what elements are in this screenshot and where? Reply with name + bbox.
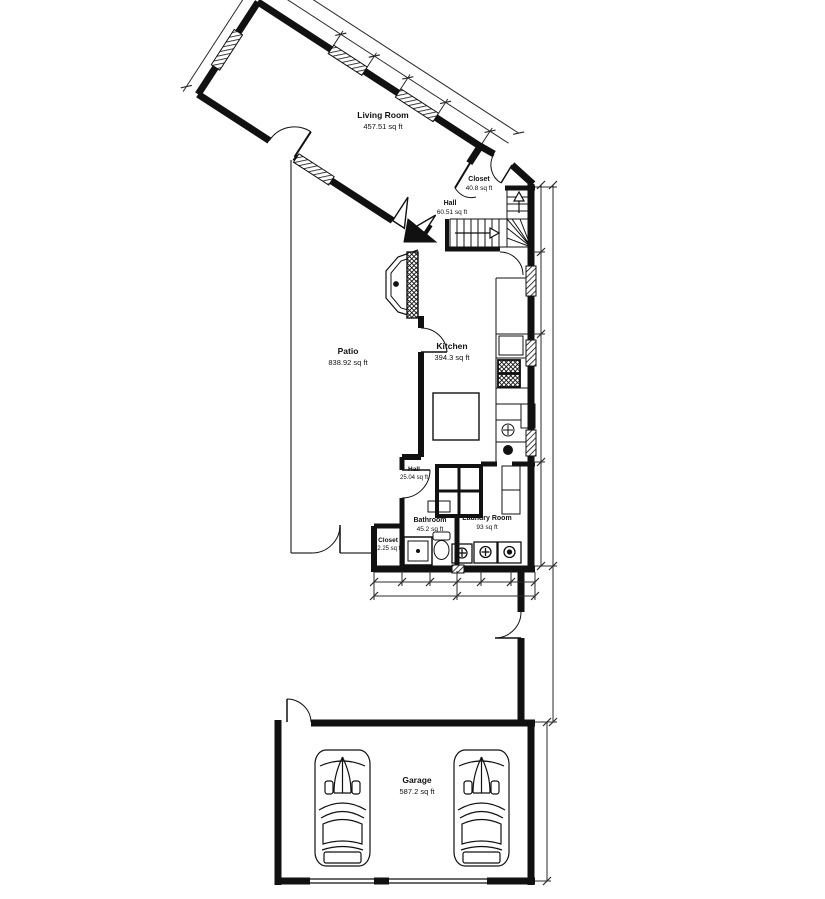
room-label-patio: Patio 838.92 sq ft xyxy=(328,346,368,367)
svg-text:Closet: Closet xyxy=(468,176,490,183)
rear-corridor xyxy=(495,572,521,722)
closet-shelving-grid xyxy=(437,466,481,516)
floor-plan-page: Living Room 457.51 sq ft Closet 40.8 sq … xyxy=(0,0,825,899)
door-garage-entry xyxy=(287,699,311,722)
svg-text:25.04 sq ft: 25.04 sq ft xyxy=(400,475,428,481)
room-label-closet-upper: Closet 40.8 sq ft xyxy=(466,176,493,192)
window xyxy=(211,29,242,70)
entry-door xyxy=(491,154,512,183)
firebox-grate xyxy=(407,252,418,318)
laundry-counter xyxy=(502,466,520,514)
svg-text:60.51 sq ft: 60.51 sq ft xyxy=(437,209,468,216)
room-label-laundry-room: Laundry Room 93 sq ft xyxy=(462,515,511,531)
door-patio-rear xyxy=(312,525,340,553)
window xyxy=(526,430,536,456)
car-right xyxy=(454,750,509,866)
svg-text:Garage: Garage xyxy=(402,775,432,785)
window xyxy=(452,565,464,573)
shower xyxy=(404,537,432,565)
stair-arrow-up xyxy=(514,192,524,213)
right-exterior-wall xyxy=(526,184,536,566)
svg-text:40.8 sq ft: 40.8 sq ft xyxy=(466,185,493,192)
wall xyxy=(198,94,269,140)
svg-text:394.3 sq ft: 394.3 sq ft xyxy=(434,353,470,362)
refrigerator xyxy=(499,336,523,355)
room-label-hall-upper: Hall 60.51 sq ft xyxy=(437,200,468,216)
kitchen-sink xyxy=(502,424,514,455)
room-label-living-room: Living Room 457.51 sq ft xyxy=(357,110,409,131)
dryer xyxy=(498,542,521,563)
svg-text:Living Room: Living Room xyxy=(357,110,409,120)
car-left xyxy=(315,750,370,866)
svg-text:Closet: Closet xyxy=(378,537,399,544)
svg-text:Kitchen: Kitchen xyxy=(436,341,467,351)
stove-burners xyxy=(498,374,520,387)
garage-door xyxy=(310,879,487,883)
svg-text:Laundry Room: Laundry Room xyxy=(462,515,511,522)
kitchen-structure xyxy=(402,278,535,462)
door-under-stairs xyxy=(500,252,523,275)
svg-text:Bathroom: Bathroom xyxy=(413,517,446,524)
toilet xyxy=(433,532,450,560)
svg-text:45.2 sq ft: 45.2 sq ft xyxy=(417,526,444,533)
patio-structure xyxy=(291,160,374,553)
stair-arrow-right xyxy=(455,228,499,238)
wall xyxy=(480,146,494,154)
svg-text:Hall: Hall xyxy=(444,200,457,207)
svg-text:93 sq ft: 93 sq ft xyxy=(476,524,498,531)
room-label-closet-lower: Closet 12.25 sq ft xyxy=(374,537,402,552)
window xyxy=(293,154,334,185)
window xyxy=(328,45,367,75)
stove-burners xyxy=(498,360,520,373)
svg-text:587.2 sq ft: 587.2 sq ft xyxy=(399,787,435,796)
svg-text:Patio: Patio xyxy=(338,346,359,356)
washer xyxy=(474,542,497,563)
wall xyxy=(512,165,533,184)
svg-text:12.25 sq ft: 12.25 sq ft xyxy=(374,546,402,552)
staircase xyxy=(445,188,535,275)
room-label-bathroom: Bathroom 45.2 sq ft xyxy=(413,517,446,533)
living-room-structure xyxy=(180,0,524,259)
svg-text:Hall: Hall xyxy=(408,466,420,473)
floor-plan-drawing: Living Room 457.51 sq ft Closet 40.8 sq … xyxy=(0,0,825,899)
kitchen-island xyxy=(433,393,479,440)
window xyxy=(526,340,536,366)
svg-text:838.92 sq ft: 838.92 sq ft xyxy=(328,358,368,367)
door-living-to-patio xyxy=(269,115,310,156)
room-label-garage: Garage 587.2 sq ft xyxy=(399,775,435,796)
fireplace xyxy=(386,219,436,318)
svg-text:457.51 sq ft: 457.51 sq ft xyxy=(363,122,403,131)
window xyxy=(526,266,536,296)
door-rear-corridor xyxy=(495,612,521,638)
